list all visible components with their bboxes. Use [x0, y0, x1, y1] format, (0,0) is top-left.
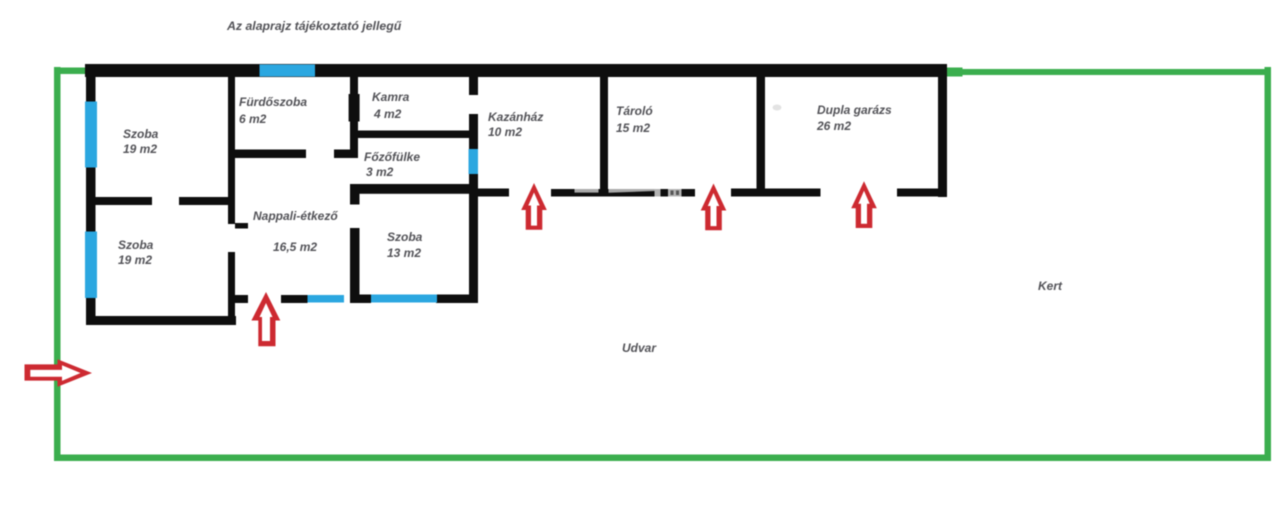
svg-text:Kamra: Kamra [372, 90, 410, 104]
svg-text:Az alaprajz tájékoztató jelleg: Az alaprajz tájékoztató jellegű [226, 19, 403, 33]
svg-text:26 m2: 26 m2 [816, 119, 851, 133]
svg-text:Főzőfülke: Főzőfülke [364, 150, 420, 164]
svg-text:Szoba: Szoba [123, 127, 159, 141]
svg-text:Fürdőszoba: Fürdőszoba [239, 95, 307, 109]
svg-text:Kazánház: Kazánház [488, 110, 543, 124]
svg-text:10 m2: 10 m2 [488, 125, 522, 139]
svg-text:Nappali-étkező: Nappali-étkező [253, 209, 338, 223]
svg-text:13 m2: 13 m2 [387, 246, 421, 260]
svg-text:16,5 m2: 16,5 m2 [273, 240, 317, 254]
svg-text:Szoba: Szoba [387, 230, 423, 244]
svg-text:3 m2: 3 m2 [366, 165, 394, 179]
svg-text:Udvar: Udvar [622, 341, 657, 355]
svg-text:15 m2: 15 m2 [616, 121, 650, 135]
svg-text:6 m2: 6 m2 [239, 112, 267, 126]
svg-text:19 m2: 19 m2 [123, 142, 157, 156]
svg-text:19 m2: 19 m2 [118, 253, 152, 267]
svg-text:Kert: Kert [1038, 279, 1063, 293]
svg-text:4 m2: 4 m2 [373, 107, 402, 121]
svg-text:Szoba: Szoba [118, 238, 154, 252]
svg-text:Tároló: Tároló [616, 104, 653, 118]
svg-text:Dupla garázs: Dupla garázs [817, 103, 892, 117]
